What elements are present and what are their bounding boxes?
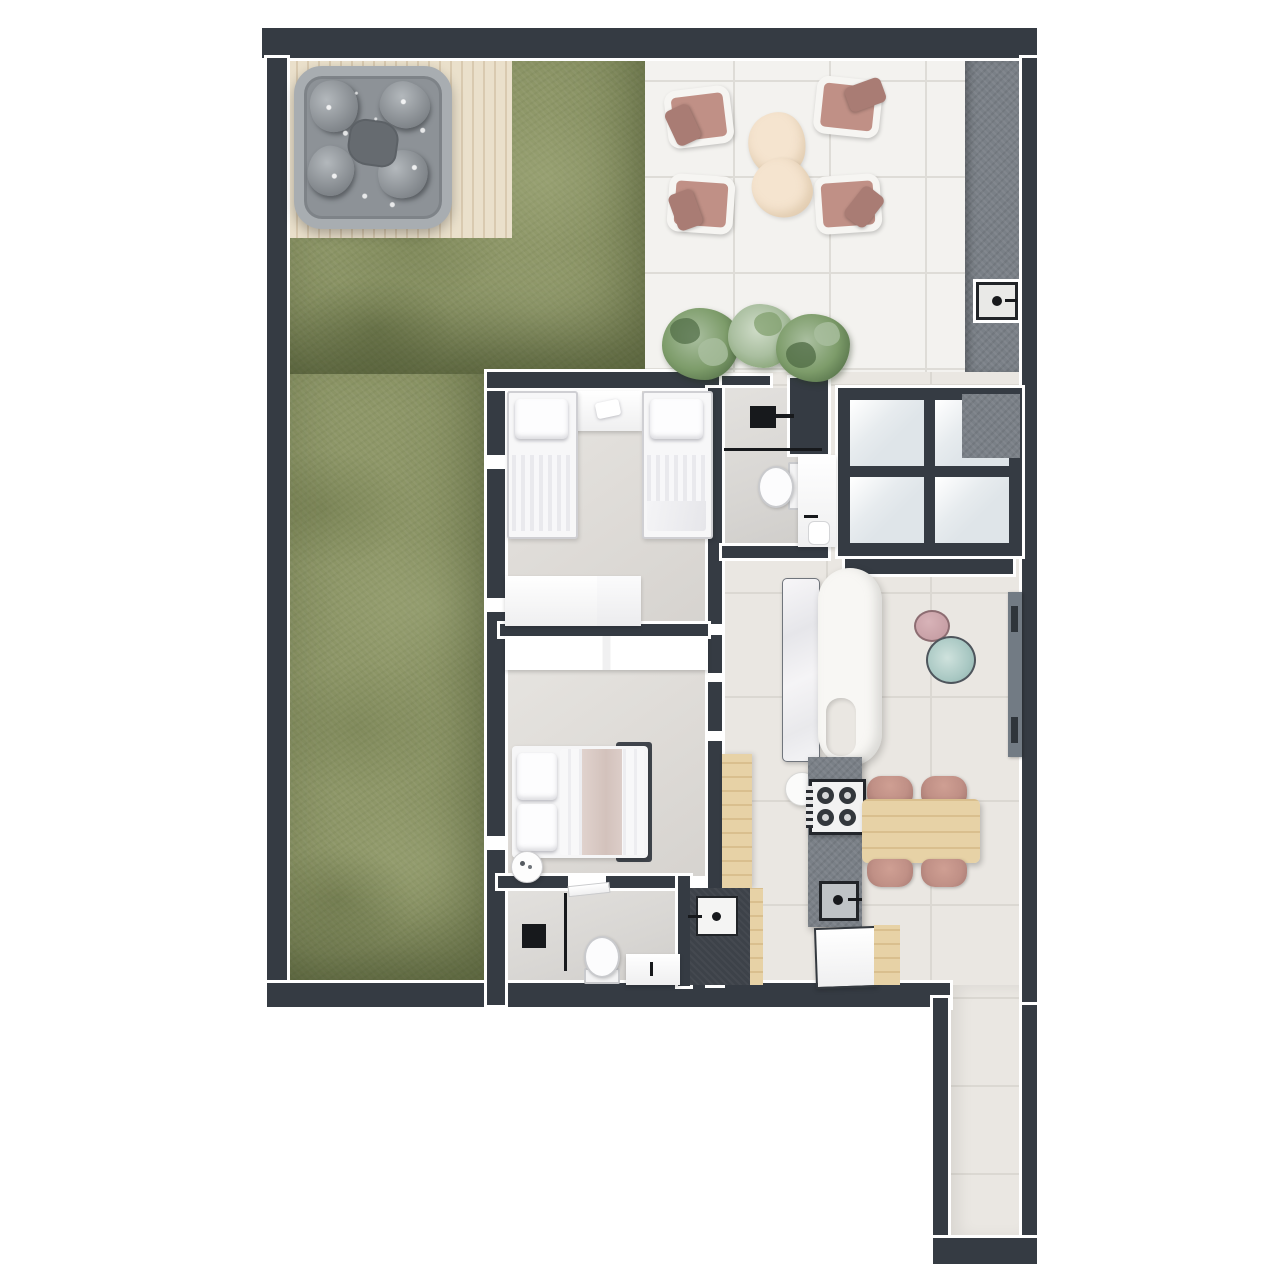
single-bed [642, 391, 713, 539]
leaf-cluster [670, 318, 700, 344]
kitchen-cabinet [874, 925, 900, 985]
wall-bath-top-column [790, 378, 828, 454]
washbasin-counter-2 [626, 954, 680, 985]
glass-pane [850, 477, 924, 543]
wardrobe [505, 636, 708, 670]
shower-screen-line-2 [564, 893, 567, 971]
wall-left [267, 58, 287, 1005]
bed-blanket [647, 455, 706, 503]
basin-tap-2 [650, 962, 653, 976]
cooktop [809, 779, 866, 835]
leaf-cluster [754, 312, 782, 336]
laundry-sink [696, 896, 738, 936]
bed-duvet-fold [647, 501, 706, 531]
bed-pillow [517, 804, 557, 851]
window-garden-1 [485, 455, 507, 469]
door-bedroom-1 [706, 624, 724, 635]
hot-tub-jets [304, 76, 442, 219]
garden-grass-side [287, 374, 487, 985]
sofa-seat-notch [826, 698, 856, 756]
burner [817, 787, 834, 804]
patio-armchair [663, 84, 736, 150]
wall-hallway-left [933, 998, 948, 1246]
patio-armchair [813, 173, 883, 235]
bed-throw [582, 749, 622, 855]
double-bed [512, 746, 648, 858]
laundry-wood-sliver [750, 888, 763, 985]
tv-panel [1008, 592, 1022, 757]
headboard-shelf [574, 391, 642, 431]
laundry-sink-drain [712, 912, 721, 921]
marble-console [782, 578, 820, 762]
wall-top [262, 28, 1037, 58]
patio-armchair [666, 173, 736, 235]
burner [817, 809, 834, 826]
bed-blanket [512, 455, 571, 531]
basin-tap [804, 515, 818, 518]
dresser-step [597, 576, 641, 626]
bedside-table [511, 851, 543, 883]
floor-plan [0, 0, 1280, 1280]
outdoor-sink-drain [992, 296, 1002, 306]
window-garden-2 [485, 598, 507, 612]
wall-right [1022, 58, 1037, 1005]
side-table-teal [926, 636, 976, 684]
partition-counter-block [962, 394, 1020, 458]
leaf-cluster [786, 342, 816, 368]
glass-pane [850, 400, 924, 466]
hallway-floor [948, 985, 1022, 1238]
glass-pane [935, 477, 1009, 543]
door-bedroom-2 [706, 673, 724, 682]
plant [776, 314, 850, 382]
shower-head [750, 406, 776, 428]
dining-chair [867, 859, 913, 887]
toilet-2 [584, 936, 620, 978]
kitchen-sink [819, 881, 859, 921]
wall-below-partition [845, 556, 1013, 574]
shower-mat [522, 924, 546, 948]
single-bed [507, 391, 578, 539]
toilet [758, 466, 794, 508]
bed-pillow [515, 399, 568, 439]
wall-entry-stub [722, 376, 770, 385]
outdoor-sink-tap [1005, 299, 1017, 302]
burner [839, 787, 856, 804]
wall-hallway-right [1022, 1005, 1037, 1246]
shelf-decor [595, 399, 622, 420]
leaf-cluster [698, 338, 728, 366]
leaf-cluster [814, 322, 840, 346]
bedside-decor [520, 861, 525, 866]
door-bedroom-3 [706, 731, 724, 741]
kitchen-wood-counter [722, 754, 752, 888]
shower-arm [776, 414, 794, 418]
hot-tub [294, 66, 452, 229]
cooktop-knobs [806, 786, 813, 828]
dining-table [862, 799, 980, 863]
laundry-sink-tap [688, 915, 702, 918]
glass-partition [838, 388, 1022, 556]
patio-armchair [812, 75, 884, 140]
outdoor-sink [976, 282, 1018, 320]
shower-screen-line [724, 448, 822, 451]
refrigerator [814, 926, 878, 989]
wall-bath-top-bottom [722, 546, 828, 558]
dining-chair [921, 859, 967, 887]
dresser [505, 576, 641, 626]
bed-pillow [650, 399, 703, 439]
kitchen-sink-tap [848, 898, 862, 901]
window-garden-3 [485, 836, 507, 850]
curved-sofa [818, 568, 882, 766]
armchair-pillow [843, 76, 888, 113]
bed-pillow [517, 753, 557, 800]
wall-hallway-cap [933, 1238, 1037, 1264]
outdoor-counter-strip [965, 58, 1022, 374]
bedside-decor [528, 865, 532, 869]
kitchen-sink-drain [833, 895, 843, 905]
washbasin-counter [798, 455, 836, 547]
burner [839, 809, 856, 826]
basin [808, 521, 830, 545]
